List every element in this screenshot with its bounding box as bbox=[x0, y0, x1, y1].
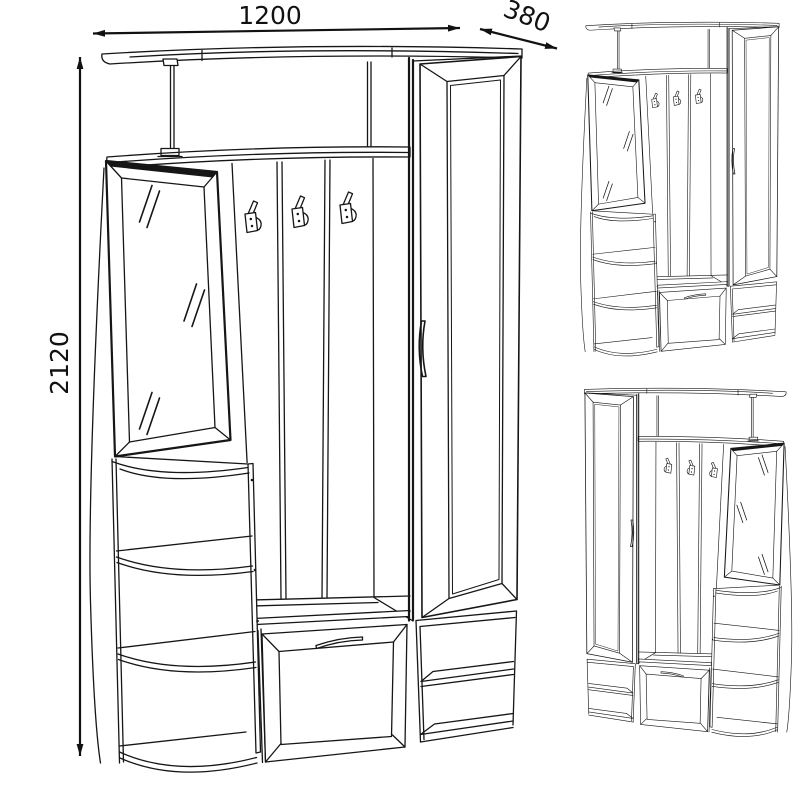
thumbnail-view-top bbox=[580, 22, 779, 356]
dimension-height-label: 2120 bbox=[45, 331, 74, 395]
dimension-depth: 380 bbox=[480, 0, 557, 49]
main-wardrobe-art bbox=[90, 46, 522, 772]
dimension-height: 2120 bbox=[45, 57, 80, 756]
technical-drawing-page: 1200 380 2120 bbox=[0, 0, 800, 800]
main-view: 1200 380 2120 bbox=[45, 0, 557, 772]
dimension-width-label: 1200 bbox=[238, 1, 302, 30]
thumbnail-view-bottom bbox=[584, 388, 791, 736]
dimension-width: 1200 bbox=[93, 1, 460, 34]
dimension-depth-label: 380 bbox=[500, 0, 555, 38]
wardrobe-drawing-svg: 1200 380 2120 bbox=[0, 0, 800, 800]
